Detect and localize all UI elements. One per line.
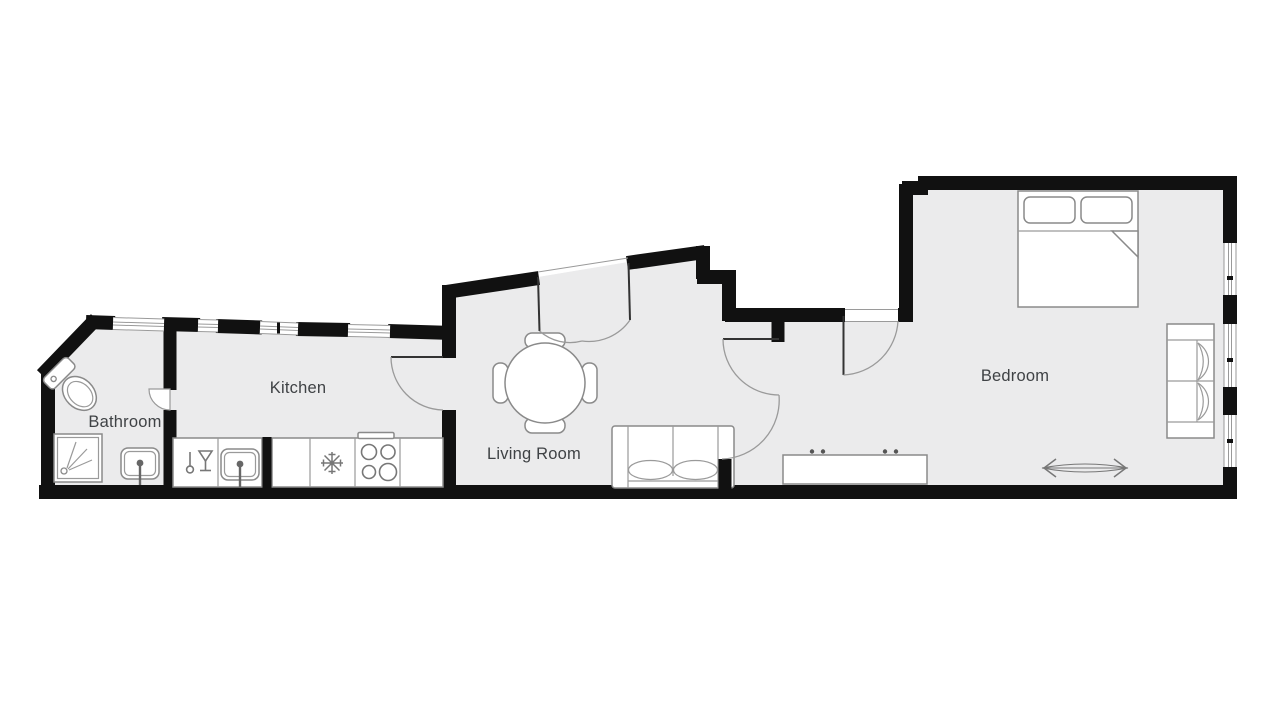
window	[1224, 324, 1236, 387]
window	[348, 325, 390, 338]
window	[113, 318, 164, 332]
loveseat	[1167, 324, 1214, 438]
window	[198, 320, 218, 333]
sofa	[612, 426, 734, 488]
window	[1224, 243, 1236, 295]
round-dining-table	[505, 343, 585, 423]
shower	[54, 434, 102, 482]
room-label-bathroom: Bathroom	[88, 413, 161, 431]
kitchen-counter	[173, 438, 443, 487]
bathroom-sink	[121, 448, 159, 485]
double-bed	[1018, 191, 1138, 307]
room-label-living-room: Living Room	[487, 445, 581, 463]
room-label-kitchen: Kitchen	[270, 379, 326, 397]
exterior-door-opening	[845, 310, 898, 322]
window	[260, 322, 298, 336]
sideboard	[783, 449, 927, 484]
window	[1224, 415, 1236, 467]
floor-plan: Bathroom Kitchen Living Room Bedroom	[0, 0, 1280, 720]
room-label-bedroom: Bedroom	[981, 367, 1049, 385]
